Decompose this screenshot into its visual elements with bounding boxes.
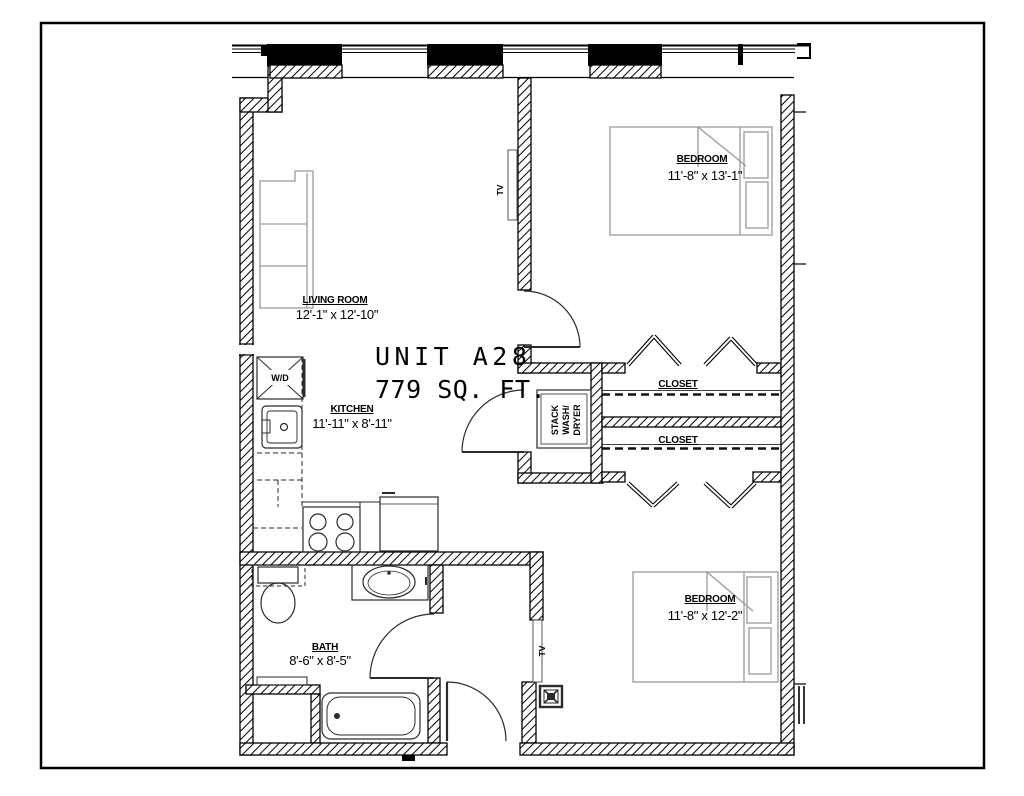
bathtub (322, 693, 420, 739)
bed-2 (633, 572, 778, 682)
wall-block (427, 44, 503, 66)
closet1-label: CLOSET (658, 379, 697, 390)
closet-divider-wall (602, 417, 781, 427)
window-jamb (261, 45, 268, 56)
wd-label: W/D (271, 373, 289, 383)
bedroom2-dims: 11'-8" x 12'-2" (668, 608, 743, 623)
bedroom2-name: BEDROOM (685, 594, 736, 605)
sofa (260, 171, 313, 308)
entry-jamb-wall (522, 682, 536, 743)
unit-area: 779 SQ. FT. (375, 375, 546, 404)
bedroom1-door (524, 291, 580, 347)
laundry-label: STACK WASH/ DRYER (550, 404, 582, 436)
kitchen-name: KITCHEN (330, 404, 373, 415)
pillow (749, 628, 771, 674)
bath-dims: 8'-6" x 8'-5" (289, 653, 351, 668)
living-room-dims: 12'-1" x 12'-10" (296, 307, 379, 322)
column-symbol (540, 686, 562, 707)
floor-plan-page: UNIT A28 779 SQ. FT. LIVING ROOM 12'-1" … (0, 0, 1024, 791)
bedroom1-name: BEDROOM (677, 154, 728, 165)
right-exterior-wall (781, 95, 794, 755)
vanity-side-wall (430, 565, 443, 613)
refrigerator (380, 493, 438, 551)
living-room-name: LIVING ROOM (302, 295, 367, 306)
left-exterior-wall (240, 98, 253, 755)
tv-label-bedroom: TV (537, 645, 547, 656)
pillow (747, 577, 771, 623)
tub-drain (334, 713, 340, 719)
bottom-wall-right (520, 743, 794, 755)
bath-closet-side-wall (311, 694, 320, 743)
bath-name: BATH (312, 642, 338, 653)
toilet (252, 565, 305, 623)
closet1-jamb-right (757, 363, 781, 373)
bath-closet-shelf (257, 677, 307, 685)
stove (303, 507, 360, 552)
living-wall-niche (508, 150, 517, 220)
bedroom1-dims: 11'-8" x 13'-1" (668, 168, 743, 183)
wall-block (588, 44, 662, 66)
room-labels: LIVING ROOM 12'-1" x 12'-10" KITCHEN 11'… (271, 154, 743, 668)
bath-closet-top-wall (246, 685, 320, 694)
laundry-side-wall (591, 363, 602, 483)
top-wall-strip (428, 65, 503, 78)
entry-door (447, 682, 506, 741)
center-wall-upper (518, 78, 531, 290)
svg-text:STACK: STACK (550, 404, 560, 435)
faucet (262, 420, 270, 433)
top-wall-strip (270, 65, 342, 78)
laundry-bottom-wall (518, 473, 603, 483)
wall-block (267, 44, 342, 66)
unit-title: UNIT A28 (375, 342, 531, 371)
labels: UNIT A28 779 SQ. FT. LIVING ROOM 12'-1" … (271, 154, 743, 668)
bath-top-wall (240, 552, 543, 565)
top-wall-strip (590, 65, 661, 78)
bath-east-wall-upper (530, 552, 543, 620)
threshold-notch (402, 755, 415, 761)
closet2-jamb-left (602, 472, 625, 482)
floor-plan: UNIT A28 779 SQ. FT. LIVING ROOM 12'-1" … (0, 0, 1024, 791)
window-jamb (738, 44, 743, 65)
pillow (746, 182, 768, 228)
svg-text:WASH/: WASH/ (561, 405, 571, 435)
closet2-jamb-right (753, 472, 781, 482)
closet2-label: CLOSET (658, 435, 697, 446)
tub-side-wall (428, 678, 440, 743)
bottom-wall-left (240, 743, 447, 755)
svg-text:DRYER: DRYER (572, 404, 582, 436)
kitchen-dims: 11'-11" x 8'-11" (312, 416, 392, 431)
sink-vanity (352, 565, 428, 600)
tv-label-living: TV (495, 184, 505, 195)
sink-drain (281, 424, 288, 431)
closet1-jamb-left (602, 363, 625, 373)
bath-door (370, 614, 434, 678)
pillow (744, 132, 768, 178)
kitchen-sink (262, 406, 302, 448)
